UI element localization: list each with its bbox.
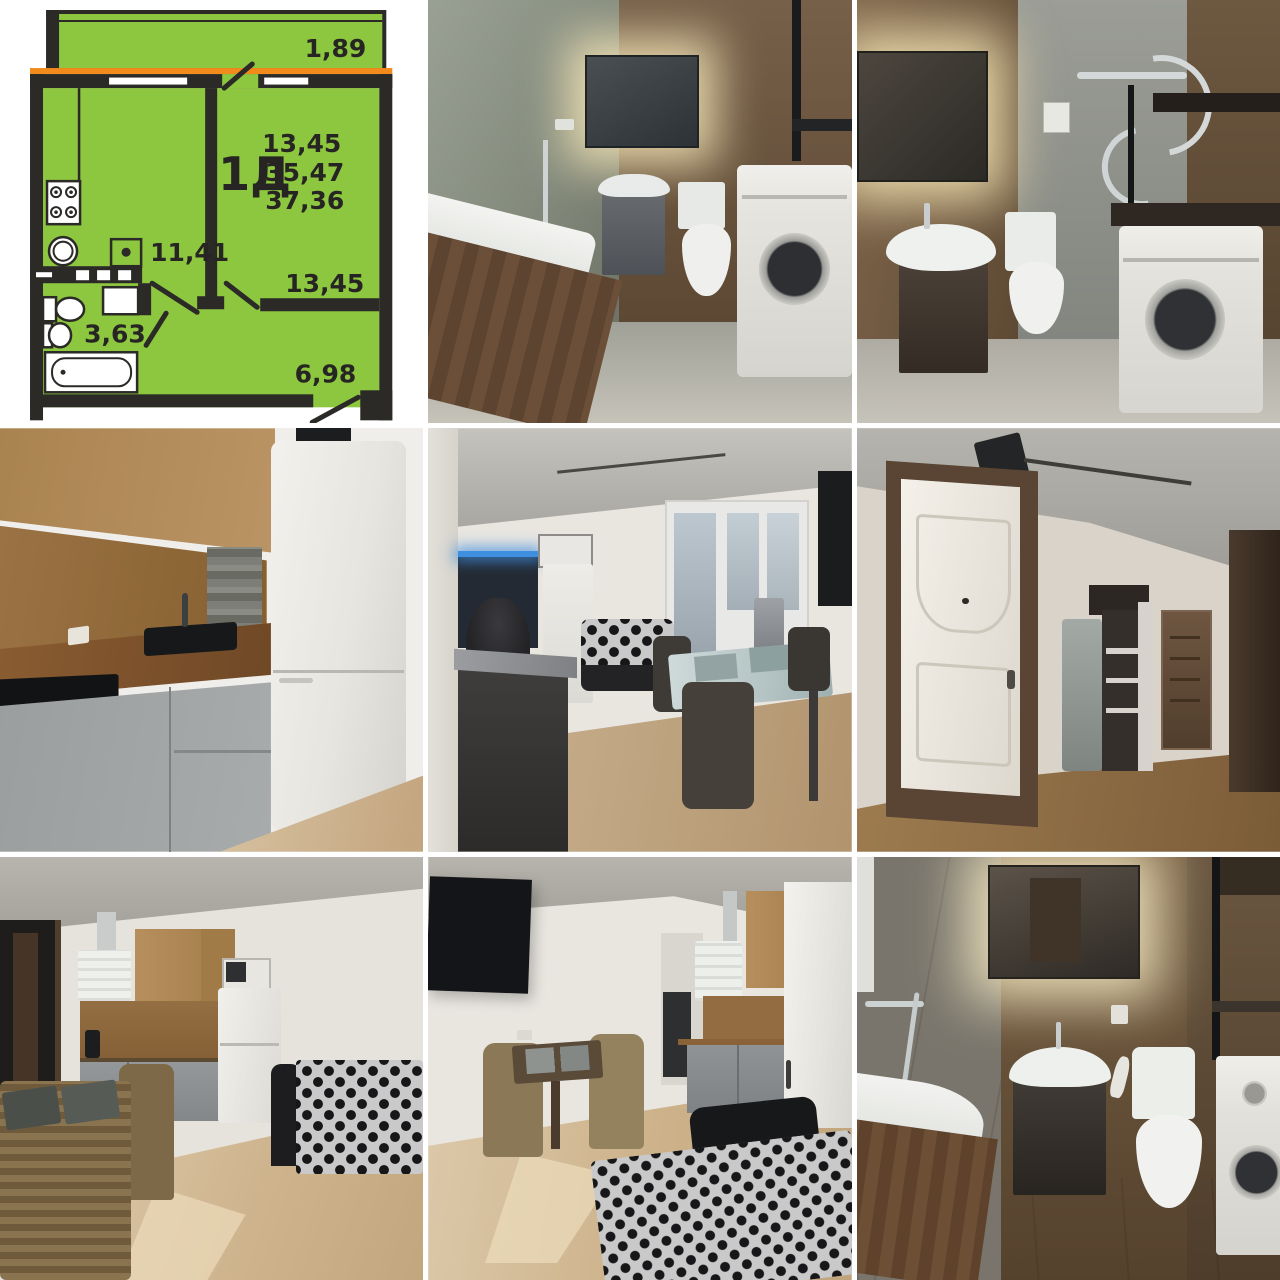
photo-kitchen xyxy=(0,428,423,851)
rack-bar xyxy=(1212,857,1220,1060)
dining-chair-front xyxy=(682,682,754,809)
vanity-cabinet xyxy=(602,186,665,275)
wardrobe-fabric-cover xyxy=(1062,619,1102,771)
faucet xyxy=(924,203,930,228)
floor-plan: 1,89 1Д 13,45 35,47 37,36 11,41 13,45 3,… xyxy=(0,0,423,423)
mirror-glow xyxy=(585,55,699,148)
label-living-area: 35,47 xyxy=(265,158,344,187)
rack-shelf-top xyxy=(1153,93,1280,112)
label-bathroom-area: 3,63 xyxy=(84,319,146,348)
placemat-1 xyxy=(694,653,738,682)
wood-backsplash xyxy=(703,996,783,1038)
kitchen-table-dot xyxy=(122,248,131,257)
washer-door xyxy=(1229,1145,1280,1200)
interior-door-right xyxy=(1229,530,1280,792)
wall-outlet xyxy=(517,1030,532,1040)
window-pane-2 xyxy=(767,513,799,610)
washer-panel-line xyxy=(1123,258,1258,262)
kitchen-window xyxy=(108,77,188,86)
wall-outlets xyxy=(68,626,89,646)
photo-hallway xyxy=(857,428,1280,851)
table-leg xyxy=(809,691,817,801)
photo-bathroom-2 xyxy=(857,0,1280,423)
rack-shelf-dark-top xyxy=(1212,857,1280,895)
kitchen-island xyxy=(458,665,568,851)
concrete-ceiling xyxy=(0,857,423,933)
vanity-sink xyxy=(598,174,670,197)
toilet-tank xyxy=(678,182,725,229)
mirror-glow xyxy=(857,51,988,182)
fridge-divider xyxy=(220,1043,279,1046)
divider-wall-cap xyxy=(197,296,224,309)
table-placemats xyxy=(525,1045,590,1075)
cooker-hood xyxy=(78,950,131,1001)
sink xyxy=(886,224,996,271)
shelf-rack-shelf xyxy=(792,119,851,132)
washer-door xyxy=(759,233,831,305)
room-hallway-wall xyxy=(260,298,379,311)
balcony-divider-line xyxy=(30,68,392,74)
bathtub-wood-panel xyxy=(857,1118,998,1280)
washer-door xyxy=(1145,279,1225,359)
vanity-cabinet xyxy=(899,254,988,373)
hood-chimney xyxy=(723,891,738,946)
tv xyxy=(818,471,852,606)
microwave-window xyxy=(226,962,245,981)
fridge-divider xyxy=(273,670,404,674)
basin-bowl xyxy=(49,323,71,347)
fridge xyxy=(271,441,406,830)
table-legs xyxy=(551,1081,560,1149)
microwave xyxy=(538,534,593,568)
door-molding-top xyxy=(916,514,1011,637)
coffee-machine xyxy=(85,1030,100,1058)
shelf-rack-bar xyxy=(792,0,800,161)
photo-bathroom-3 xyxy=(857,857,1280,1280)
toilet-tank xyxy=(43,297,56,321)
fridge-handle xyxy=(279,678,313,683)
washer-panel-line xyxy=(742,195,848,199)
led-strip xyxy=(458,551,538,557)
cabinet-seam xyxy=(169,687,171,852)
photo-bathroom-1 xyxy=(428,0,851,423)
bottom-wall xyxy=(30,394,313,407)
label-balcony-area: 1,89 xyxy=(305,34,367,63)
top-wall xyxy=(30,74,392,88)
mirror-reflection-door xyxy=(1030,878,1081,963)
access-hatch xyxy=(1043,102,1070,134)
left-wall xyxy=(30,74,43,420)
balcony-left-wall xyxy=(46,10,59,72)
entrance-wall-stub xyxy=(360,390,392,420)
wall-outlet xyxy=(1111,1005,1128,1024)
toilet-tank xyxy=(1132,1047,1196,1119)
tv xyxy=(428,876,532,994)
washer-spot xyxy=(103,287,138,314)
photo-collage: 1,89 1Д 13,45 35,47 37,36 11,41 13,45 3,… xyxy=(0,0,1280,1280)
right-wall xyxy=(379,74,392,420)
wardrobe-side-panel xyxy=(1138,602,1153,771)
bathtub-drain xyxy=(61,370,66,375)
floor-plan-drawing: 1,89 1Д 13,45 35,47 37,36 11,41 13,45 3,… xyxy=(0,0,423,423)
placemat-2 xyxy=(749,645,793,674)
label-room-area: 13,45 xyxy=(285,269,364,298)
shower-column xyxy=(543,140,548,233)
table-glass-inset-2 xyxy=(61,1079,121,1124)
window-pane-1 xyxy=(727,513,759,610)
label-total-area: 37,36 xyxy=(265,186,344,215)
counter-edge xyxy=(678,1039,784,1045)
label-hallway-area: 6,98 xyxy=(295,359,357,388)
sofa xyxy=(296,1060,423,1174)
toilet-bowl xyxy=(56,298,84,321)
hood-chimney xyxy=(97,912,116,954)
wall-outlet xyxy=(555,119,574,130)
bathroom-right-wall xyxy=(138,283,151,315)
vanity-cabinet xyxy=(1013,1077,1106,1196)
drawer-seam xyxy=(174,750,271,753)
faucet xyxy=(182,593,188,627)
label-kitchen-area: 11,41 xyxy=(150,238,229,267)
counter-over-washer xyxy=(1111,203,1280,226)
wood-backsplash xyxy=(80,1001,220,1060)
wall-sliver xyxy=(428,428,458,851)
fridge-handle xyxy=(786,1060,791,1090)
lower-cabinets xyxy=(0,682,271,851)
fridge-freezer xyxy=(784,882,852,1128)
rack-shelf xyxy=(1212,1001,1280,1012)
curtain-sliver xyxy=(857,857,874,992)
dining-chair-right xyxy=(788,627,830,690)
photo-living-room-3 xyxy=(428,857,851,1280)
photo-living-room-2 xyxy=(0,857,423,1280)
room-window xyxy=(263,77,309,86)
photo-living-room-1 xyxy=(428,428,851,851)
interior-door-panel-lines xyxy=(1170,627,1200,720)
label-header-room-area: 13,45 xyxy=(262,129,341,158)
door-handle xyxy=(1007,670,1015,689)
faucet xyxy=(1056,1022,1061,1050)
stove xyxy=(47,181,80,224)
cooker-hood xyxy=(695,941,742,1000)
door-molding-bottom xyxy=(916,662,1011,768)
kitchen-room-divider-wall xyxy=(205,88,217,300)
